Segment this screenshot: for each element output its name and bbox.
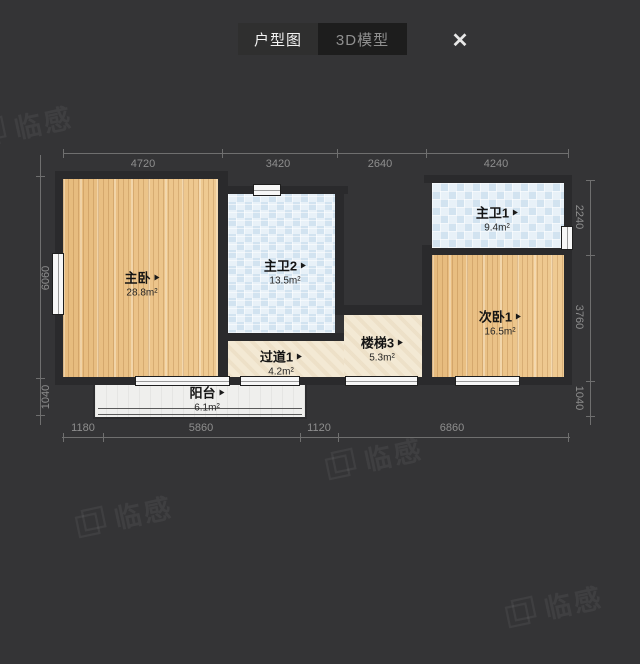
room-name: 主卧: [124, 268, 150, 287]
cube-logo-icon: [319, 443, 362, 486]
dim-label: 4240: [484, 158, 508, 170]
cube-logo-icon: [69, 501, 112, 544]
dim-tick: [222, 149, 223, 158]
room-label-master-bedroom[interactable]: 主卧 28.8m²: [124, 268, 159, 299]
room-label-master-bath-1[interactable]: 主卫1 9.4m²: [476, 203, 518, 234]
dim-tick: [586, 381, 595, 382]
watermark: 临感: [0, 96, 77, 155]
dim-tick: [36, 378, 45, 379]
dim-tick: [586, 255, 595, 256]
dim-label: 6060: [40, 266, 52, 290]
room-name: 主卫1: [476, 203, 509, 222]
dimension-line-right: [590, 180, 591, 425]
dim-tick: [300, 433, 301, 442]
dim-tick: [337, 149, 338, 158]
room-name: 主卫2: [264, 256, 297, 275]
watermark: 临感: [69, 486, 177, 545]
window: [253, 184, 281, 196]
dim-tick: [586, 180, 595, 181]
cube-logo-icon: [499, 591, 542, 634]
dim-label: 3760: [573, 305, 585, 329]
room-area: 28.8m²: [126, 288, 157, 299]
dim-label: 1180: [71, 422, 95, 434]
room-label-stairs[interactable]: 楼梯3 5.3m²: [361, 333, 403, 364]
dim-label: 1120: [307, 422, 331, 434]
dim-tick: [63, 433, 64, 442]
wall: [432, 248, 564, 255]
window: [561, 226, 573, 250]
dim-tick: [568, 433, 569, 442]
arrow-right-icon: [516, 313, 521, 319]
room-name: 阳台: [189, 383, 215, 402]
watermark: 临感: [499, 576, 607, 635]
tab-floorplan[interactable]: 户型图: [238, 23, 318, 55]
dim-tick: [568, 149, 569, 158]
room-area: 9.4m²: [484, 223, 510, 234]
dim-label: 1040: [40, 385, 52, 409]
dim-tick: [36, 176, 45, 177]
dimension-line-bottom: [62, 437, 570, 438]
arrow-right-icon: [398, 339, 403, 345]
dim-label: 4720: [131, 158, 155, 170]
dim-label: 2240: [573, 205, 585, 229]
balcony-door: [240, 376, 300, 386]
wall: [335, 194, 344, 315]
room-label-second-bedroom[interactable]: 次卧1 16.5m²: [479, 307, 521, 338]
room-name: 次卧1: [479, 307, 512, 326]
wall: [422, 245, 432, 383]
window: [345, 376, 418, 386]
room-area: 4.2m²: [268, 367, 294, 378]
watermark-text: 临感: [540, 576, 607, 627]
dim-tick: [586, 416, 595, 417]
room-area: 5.3m²: [369, 353, 395, 364]
cube-logo-icon: [0, 111, 12, 154]
window: [455, 376, 520, 386]
room-name: 过道1: [260, 347, 293, 366]
room-area: 6.1m²: [194, 403, 220, 414]
watermark-text: 临感: [360, 428, 427, 479]
dim-tick: [36, 415, 45, 416]
wall: [55, 171, 228, 179]
dim-tick: [63, 149, 64, 158]
wall: [218, 179, 228, 377]
watermark-text: 临感: [10, 96, 77, 147]
arrow-right-icon: [297, 353, 302, 359]
close-icon[interactable]: ✕: [446, 27, 474, 53]
dim-label: 5860: [189, 422, 213, 434]
arrow-right-icon: [220, 389, 225, 395]
wall: [564, 175, 572, 383]
arrow-right-icon: [155, 274, 160, 280]
wall: [335, 305, 430, 315]
arrow-right-icon: [513, 209, 518, 215]
room-label-balcony[interactable]: 阳台 6.1m²: [189, 383, 224, 414]
dim-tick: [426, 149, 427, 158]
dim-label: 2640: [368, 158, 392, 170]
floorplan-viewer: 临感 临感 临感 临感 户型图 3D模型 ✕: [0, 0, 640, 664]
dim-label: 1040: [573, 386, 585, 410]
dim-tick: [103, 433, 104, 442]
dim-label: 3420: [266, 158, 290, 170]
dim-label: 6860: [440, 422, 464, 434]
watermark-text: 临感: [110, 486, 177, 537]
dimension-line-top: [63, 153, 568, 154]
room-label-master-bath-2[interactable]: 主卫2 13.5m²: [264, 256, 306, 287]
room-name: 楼梯3: [361, 333, 394, 352]
window: [52, 253, 64, 315]
room-area: 16.5m²: [484, 327, 515, 338]
wall: [424, 175, 572, 183]
arrow-right-icon: [301, 262, 306, 268]
wall: [218, 186, 348, 194]
wall: [228, 333, 344, 341]
room-area: 13.5m²: [269, 276, 300, 287]
dim-tick: [338, 433, 339, 442]
room-label-hallway[interactable]: 过道1 4.2m²: [260, 347, 302, 378]
tab-3d-model[interactable]: 3D模型: [318, 23, 407, 55]
